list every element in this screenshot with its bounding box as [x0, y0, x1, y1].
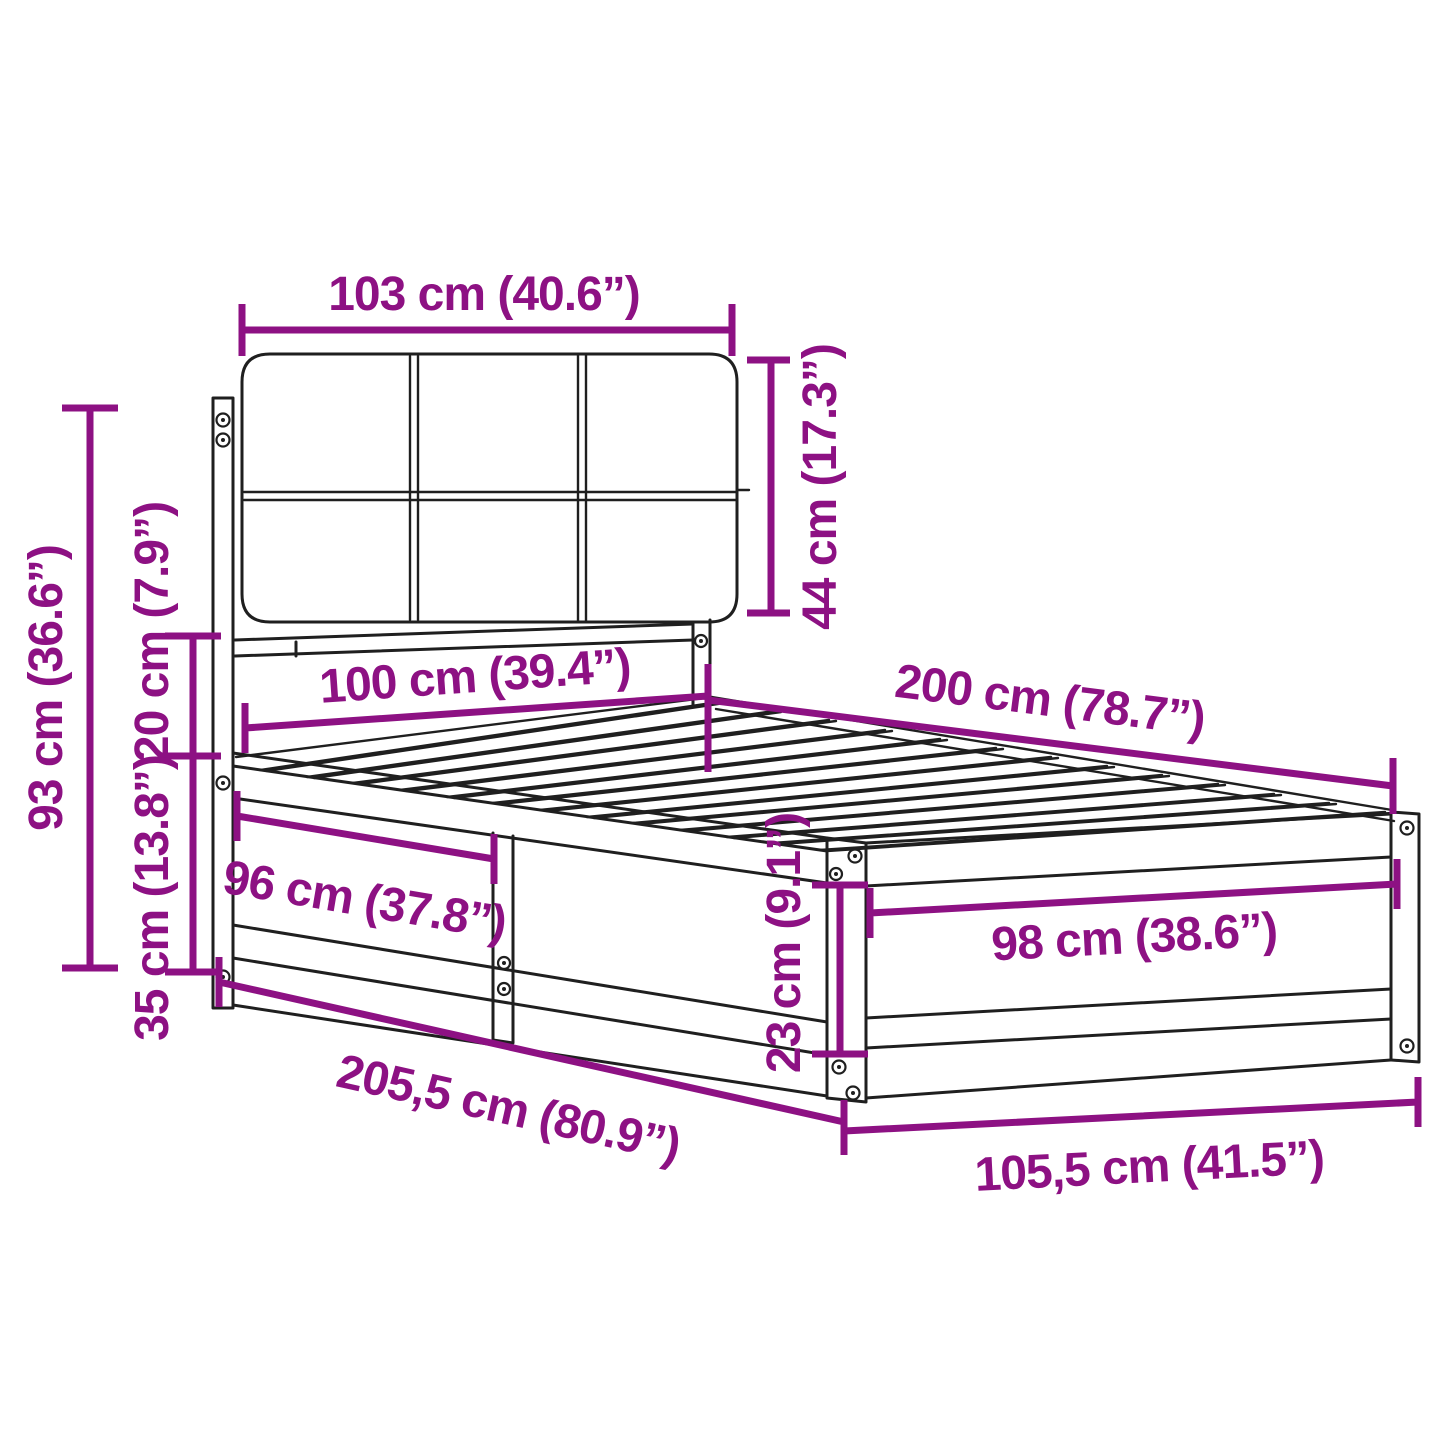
- side-upper-rail-lines: [233, 753, 827, 883]
- dim-footboard-inner-width: 98 cm (38.6”): [870, 859, 1397, 971]
- diagram-svg: 103 cm (40.6”) 44 cm (17.3”) 93 cm (36.6…: [0, 0, 1445, 1445]
- dim-frame-base-height-label: 35 cm (13.8”): [126, 755, 179, 1041]
- dim-footboard-inner-width-label: 98 cm (38.6”): [990, 904, 1278, 972]
- cushion-outline: [242, 354, 737, 622]
- side-upper-rail: [233, 753, 827, 883]
- dim-side-rail-section-length-label: 96 cm (37.8”): [219, 851, 510, 950]
- headboard-left-post-outline: [213, 398, 233, 1008]
- dim-total-width: 105,5 cm (41.5”): [844, 1077, 1418, 1202]
- dim-total-width-line: [844, 1077, 1418, 1131]
- dim-headboard-width: 103 cm (40.6”): [242, 268, 732, 356]
- dim-cushion-to-frame-gap: 20 cm (7.9”): [126, 502, 221, 762]
- dim-headboard-total-height-label: 93 cm (36.6”): [20, 545, 73, 831]
- dim-side-rail-section-length: 96 cm (37.8”): [219, 791, 510, 950]
- headboard-left-post: [213, 398, 233, 1008]
- dim-total-width-label: 105,5 cm (41.5”): [973, 1131, 1325, 1202]
- headboard-cushion: [242, 354, 749, 622]
- dim-cushion-height-label: 44 cm (17.3”): [794, 344, 847, 630]
- dim-total-length-label: 205,5 cm (80.9”): [332, 1045, 685, 1173]
- dim-cushion-height-line: [747, 360, 790, 613]
- side-bottom-rail: [233, 925, 827, 1096]
- side-bottom-rail-lines: [233, 925, 827, 1096]
- foot-far-post: [1391, 812, 1419, 1062]
- dim-headboard-total-height: 93 cm (36.6”): [20, 408, 118, 968]
- dim-side-rail-height-label: 23 cm (9.1”): [758, 813, 811, 1073]
- dimension-diagram: 103 cm (40.6”) 44 cm (17.3”) 93 cm (36.6…: [0, 0, 1445, 1445]
- dim-headboard-width-label: 103 cm (40.6”): [328, 268, 640, 321]
- slat-lines: [260, 702, 1392, 851]
- cushion-seams: [244, 355, 749, 621]
- dim-cushion-height: 44 cm (17.3”): [747, 344, 847, 630]
- dim-total-length: 205,5 cm (80.9”): [219, 957, 844, 1173]
- dim-side-rail-height-line: [812, 885, 868, 1054]
- dim-cushion-to-frame-gap-label: 20 cm (7.9”): [126, 502, 179, 762]
- dim-bed-length-label: 200 cm (78.7”): [892, 655, 1208, 747]
- dim-bed-length: 200 cm (78.7”): [708, 655, 1393, 814]
- dim-frame-base-height: 35 cm (13.8”): [126, 755, 221, 1041]
